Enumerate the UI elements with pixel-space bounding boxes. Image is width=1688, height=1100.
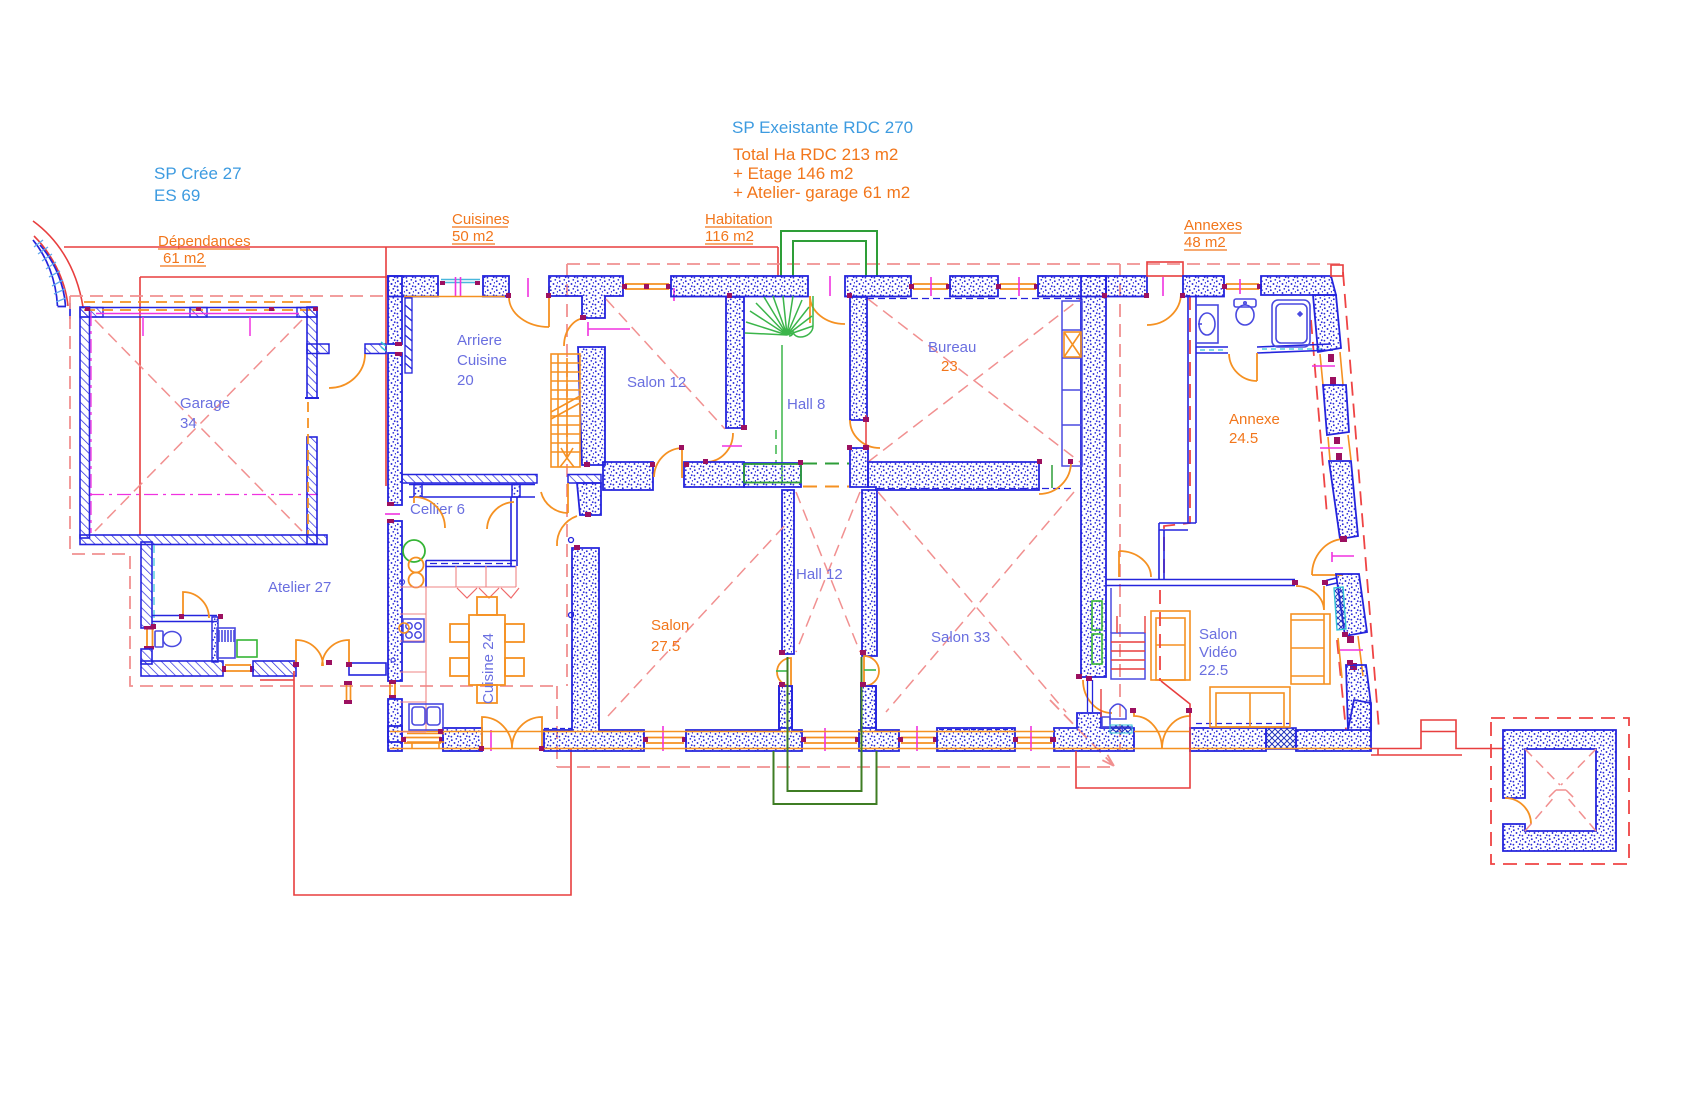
svg-text:23: 23	[941, 358, 958, 375]
svg-text:27.5: 27.5	[651, 638, 680, 655]
svg-text:Cellier 6: Cellier 6	[410, 501, 465, 518]
svg-text:Total Ha RDC 213 m2: Total Ha RDC 213 m2	[733, 145, 898, 164]
svg-text:116 m2: 116 m2	[705, 228, 754, 245]
svg-text:50 m2: 50 m2	[452, 228, 494, 245]
svg-text:20: 20	[457, 372, 474, 389]
svg-text:Hall 12: Hall 12	[796, 566, 843, 583]
svg-text:24.5: 24.5	[1229, 430, 1258, 447]
svg-text:34: 34	[180, 415, 197, 432]
svg-text:Annexe: Annexe	[1229, 411, 1280, 428]
svg-text:Bureau: Bureau	[928, 339, 976, 356]
svg-text:Annexes: Annexes	[1184, 217, 1242, 234]
svg-text:Garage: Garage	[180, 395, 230, 412]
svg-text:48 m2: 48 m2	[1184, 234, 1226, 251]
svg-text:Arriere: Arriere	[457, 332, 502, 349]
svg-text:61 m2: 61 m2	[163, 250, 205, 267]
svg-text:Atelier 27: Atelier 27	[268, 579, 331, 596]
svg-text:Salon 12: Salon 12	[627, 374, 686, 391]
svg-text:22.5: 22.5	[1199, 662, 1228, 679]
svg-text:Salon: Salon	[1199, 626, 1237, 643]
svg-text:ES 69: ES 69	[154, 186, 200, 205]
svg-text:SP Crée 27: SP Crée 27	[154, 164, 242, 183]
svg-text:Cuisine: Cuisine	[457, 352, 507, 369]
svg-text:+ Etage 146 m2: + Etage 146 m2	[733, 164, 854, 183]
svg-text:Cuisines: Cuisines	[452, 211, 510, 228]
svg-text:Hall 8: Hall 8	[787, 396, 825, 413]
svg-text:Habitation: Habitation	[705, 211, 773, 228]
svg-text:+ Atelier- garage 61 m2: + Atelier- garage 61 m2	[733, 183, 910, 202]
svg-text:Vidéo: Vidéo	[1199, 644, 1237, 661]
svg-text:Cuisine 24: Cuisine 24	[480, 633, 497, 704]
svg-text:Salon 33: Salon 33	[931, 629, 990, 646]
svg-text:SP Exeistante RDC 270: SP Exeistante RDC 270	[732, 118, 913, 137]
svg-text:Salon: Salon	[651, 617, 689, 634]
